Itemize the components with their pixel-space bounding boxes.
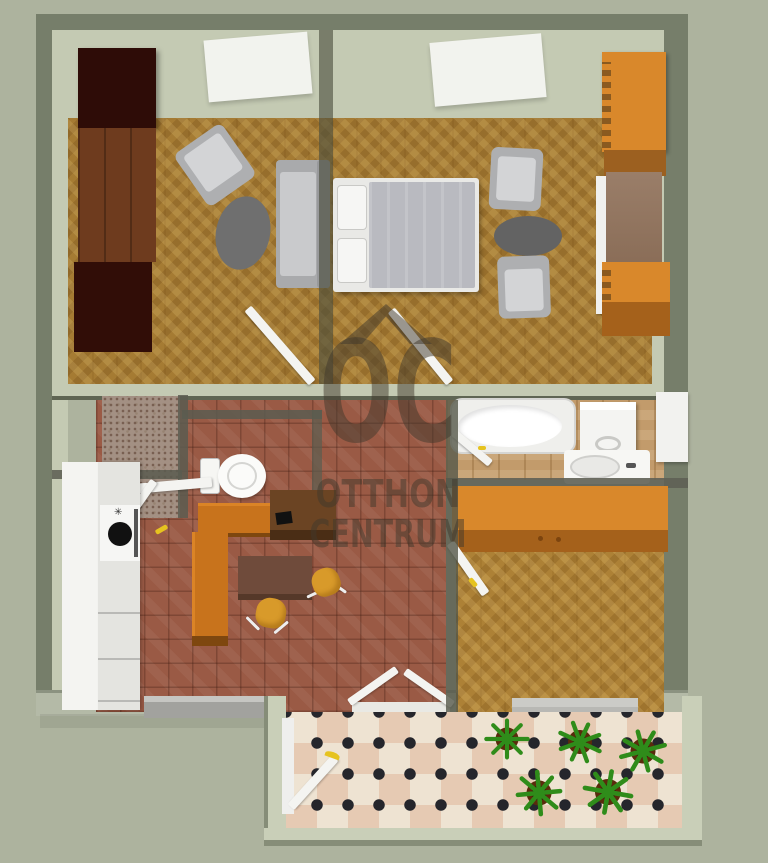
floor-hallway — [456, 550, 664, 712]
outer-wall-right — [664, 14, 688, 714]
bed-blanket — [369, 182, 475, 288]
drawer-line — [98, 700, 140, 702]
kitchen-counter — [98, 462, 140, 710]
bathtub-basin — [458, 405, 562, 447]
wardrobe-knob — [538, 536, 543, 541]
outer-wall-top — [36, 14, 688, 30]
plant-icon — [484, 716, 530, 762]
wardrobe-orange-bottom — [602, 262, 670, 304]
sofa-seat — [280, 172, 316, 276]
outer-wall-left — [36, 14, 52, 714]
window-bedroom — [429, 33, 546, 107]
stove-vent — [134, 509, 138, 557]
faucet — [626, 463, 636, 468]
floorplan-render: ✳ — [0, 0, 768, 863]
wardrobe-louver-edge — [602, 266, 611, 300]
wardrobe-hallway-front — [452, 530, 668, 552]
stove: ✳ — [100, 505, 140, 561]
wardrobe-dark-top — [78, 48, 156, 128]
wardrobe-orange-bottom-face — [602, 302, 670, 336]
wardrobe-louver-edge — [602, 62, 611, 148]
kitchen-counter-wall-strip — [62, 462, 98, 710]
wardrobe-dark-bottom — [74, 262, 152, 352]
bathroom-door-handle — [478, 446, 486, 450]
wc-wall-north — [182, 410, 322, 419]
drawer-line — [98, 612, 140, 614]
desk — [270, 490, 336, 540]
pillow — [337, 238, 367, 283]
wardrobe-orange-top — [602, 52, 666, 152]
bar-counter-end — [192, 636, 228, 646]
wardrobe-brown-mid — [78, 128, 156, 262]
armchair-seat — [496, 156, 536, 202]
dining-table — [238, 556, 312, 600]
washing-machine — [580, 402, 636, 452]
side-table-bedroom — [494, 216, 562, 256]
gas-icon: ✳ — [114, 507, 126, 519]
toilet-bowl — [218, 454, 266, 498]
wall-cabinet-boiler — [656, 392, 688, 462]
wardrobe-knob — [556, 537, 561, 542]
stove-burner — [108, 522, 132, 546]
window-kitchen-south — [144, 696, 272, 718]
toilet-seat-rim — [227, 462, 257, 490]
terrace-wall-right — [682, 696, 702, 838]
window-living-room — [203, 32, 312, 103]
armchair-bedroom-2 — [497, 255, 551, 319]
drawer-line — [98, 658, 140, 660]
wall-kitchen-hall — [446, 400, 458, 712]
wall-divider-rooms — [319, 30, 333, 386]
plant-icon — [578, 762, 638, 822]
terrace-wall-bottom — [264, 828, 702, 846]
wardrobe-hallway — [452, 486, 668, 532]
toilet-tank — [200, 458, 220, 494]
armchair-seat — [504, 268, 543, 311]
pillow — [337, 185, 367, 230]
basin-bowl — [570, 455, 620, 479]
tv — [275, 511, 293, 525]
armchair-bedroom-1 — [488, 147, 543, 212]
bar-counter-vertical — [192, 532, 228, 644]
bed — [333, 178, 479, 292]
